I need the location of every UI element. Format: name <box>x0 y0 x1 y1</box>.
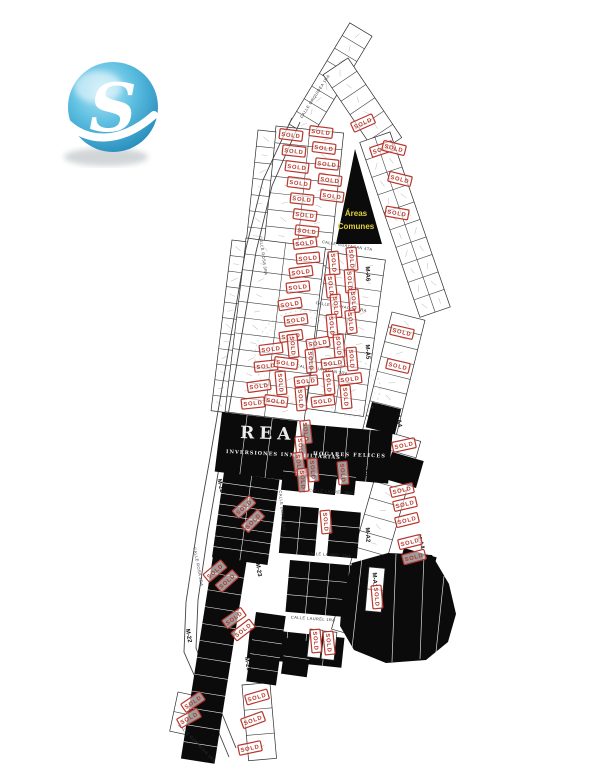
sold-stamp: SOLD <box>275 371 287 395</box>
sold-stamp: SOLD <box>310 629 322 653</box>
sold-stamp: SOLD <box>346 347 358 371</box>
common-area-label: Comunes <box>338 222 375 231</box>
sold-stamp: SOLD <box>284 314 308 327</box>
logo-letter: S <box>89 69 137 147</box>
sold-stamp: SOLD <box>286 281 310 293</box>
sold-stamp: SOLD <box>259 343 283 356</box>
sold-stamp: SOLD <box>295 387 307 411</box>
sold-stamp: SOLD <box>307 458 319 482</box>
page: ÁreasComunesREALINVERSIONES INMOBILIARIA… <box>0 0 614 768</box>
block-label: M-23 <box>243 657 251 672</box>
sold-stamp: SOLD <box>285 161 309 174</box>
sold-stamp: SOLD <box>348 289 360 313</box>
sold-stamp: SOLD <box>282 145 306 157</box>
sold-stamp: SOLD <box>279 129 303 142</box>
company-logo: S <box>60 55 172 175</box>
sold-stamp: SOLD <box>345 310 357 334</box>
sold-stamp: SOLD <box>333 334 345 358</box>
sold-stamp: SOLD <box>346 247 358 271</box>
sold-stamp: SOLD <box>287 334 299 358</box>
sold-stamp: SOLD <box>320 510 332 534</box>
sold-stamp: SOLD <box>321 357 345 370</box>
sold-stamp: SOLD <box>328 251 340 275</box>
sold-area-region <box>340 553 456 663</box>
sold-stamp: SOLD <box>294 375 318 387</box>
sold-stamp: SOLD <box>293 209 317 222</box>
sold-stamp: SOLD <box>296 252 320 264</box>
sold-stamp: SOLD <box>323 371 335 395</box>
sold-stamp: SOLD <box>287 177 311 190</box>
street-label: CALLE DOBLE VIA <box>278 490 287 531</box>
sold-stamp: SOLD <box>337 461 349 485</box>
sold-stamp: SOLD <box>293 237 317 250</box>
sold-stamp: SOLD <box>318 174 342 187</box>
sold-stamp: SOLD <box>311 395 335 408</box>
sold-stamp: SOLD <box>323 631 335 655</box>
block-label: M-A5 <box>364 344 371 360</box>
sold-stamp: SOLD <box>295 225 319 237</box>
sold-stamp: SOLD <box>290 193 314 205</box>
sold-stamp: SOLD <box>264 395 288 408</box>
block-label: M-A3 <box>361 461 368 477</box>
sold-stamp: SOLD <box>305 349 317 373</box>
sold-stamp: SOLD <box>309 126 333 139</box>
sold-stamp: SOLD <box>241 397 265 409</box>
sold-stamp: SOLD <box>320 190 344 203</box>
block-label: M-22 <box>184 629 192 644</box>
common-area-label: Áreas <box>345 209 368 218</box>
block-label: M-A2 <box>364 527 371 543</box>
sold-lot-block <box>281 638 312 677</box>
sold-stamp: SOLD <box>338 373 362 386</box>
block-label: M-23 <box>254 563 262 578</box>
sold-stamp: SOLD <box>315 158 339 170</box>
street-label: CALLE LAUREL 1RA <box>291 614 336 622</box>
sold-stamp: SOLD <box>297 468 309 492</box>
sold-stamp: SOLD <box>340 385 352 409</box>
sold-stamp: SOLD <box>274 357 298 370</box>
sold-stamp: SOLD <box>312 142 336 155</box>
sold-stamp: SOLD <box>371 585 383 609</box>
block-label: M-A6 <box>364 266 371 282</box>
sold-lot-block <box>327 510 361 558</box>
